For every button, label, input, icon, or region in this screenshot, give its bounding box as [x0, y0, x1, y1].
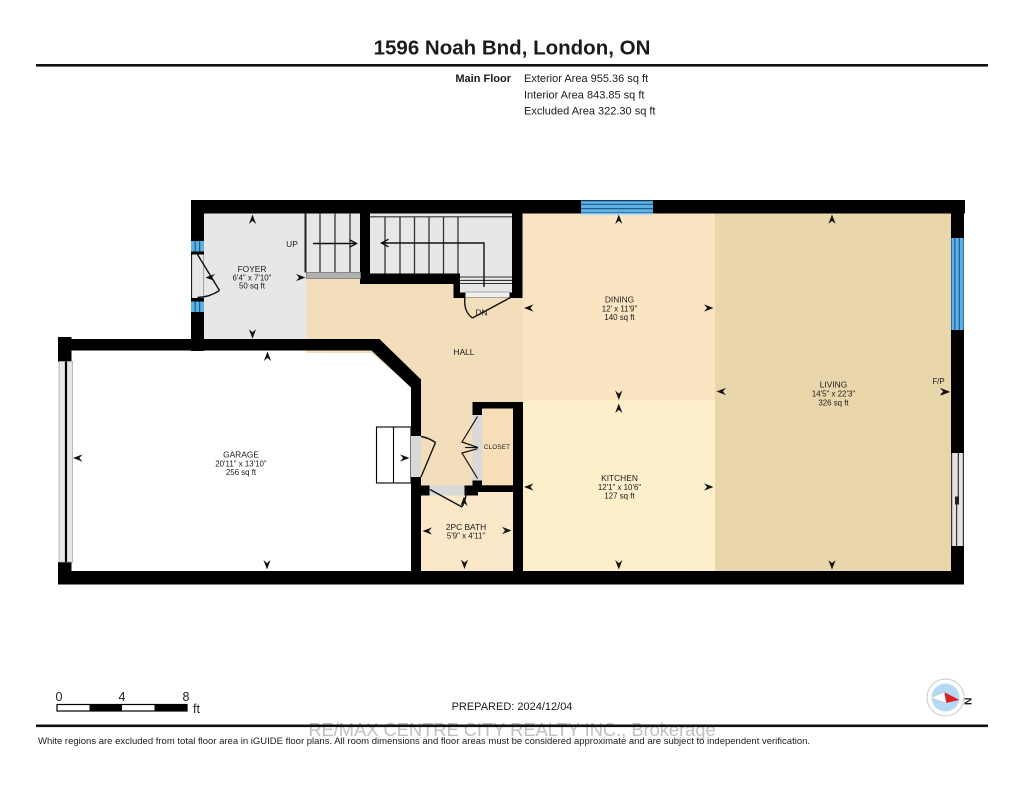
svg-text:326 sq ft: 326 sq ft — [818, 399, 849, 408]
svg-text:PREPARED: 2024/12/04: PREPARED: 2024/12/04 — [452, 701, 573, 713]
svg-text:0: 0 — [56, 690, 63, 704]
svg-text:F/P: F/P — [932, 377, 944, 386]
svg-text:140 sq ft: 140 sq ft — [604, 313, 635, 322]
svg-text:50 sq ft: 50 sq ft — [239, 282, 266, 291]
svg-text:FOYER: FOYER — [238, 264, 267, 274]
svg-text:UP: UP — [286, 239, 298, 249]
svg-text:Interior Area 843.85 sq ft: Interior Area 843.85 sq ft — [524, 90, 644, 102]
svg-text:LIVING: LIVING — [820, 380, 847, 390]
svg-text:Exterior Area 955.36 sq ft: Exterior Area 955.36 sq ft — [524, 73, 648, 85]
svg-text:HALL: HALL — [454, 347, 475, 357]
svg-text:8: 8 — [183, 690, 190, 704]
svg-text:5'9" x 4'11": 5'9" x 4'11" — [447, 532, 485, 541]
svg-text:127 sq ft: 127 sq ft — [604, 492, 635, 501]
svg-text:CLOSET: CLOSET — [484, 444, 510, 451]
svg-text:DINING: DINING — [605, 295, 634, 305]
svg-text:14'5" x 22'3": 14'5" x 22'3" — [812, 390, 855, 399]
svg-text:Excluded Area 322.30 sq ft: Excluded Area 322.30 sq ft — [524, 106, 655, 118]
svg-text:4: 4 — [119, 690, 126, 704]
svg-text:White regions are excluded fro: White regions are excluded from total fl… — [38, 736, 810, 747]
svg-text:DN: DN — [475, 308, 487, 318]
svg-text:N: N — [962, 698, 974, 706]
svg-text:256 sq ft: 256 sq ft — [226, 468, 257, 477]
svg-text:ft: ft — [193, 702, 200, 716]
svg-text:2PC BATH: 2PC BATH — [446, 522, 486, 532]
svg-text:Main Floor: Main Floor — [455, 73, 511, 85]
svg-text:GARAGE: GARAGE — [223, 450, 259, 460]
svg-text:1596 Noah Bnd, London, ON: 1596 Noah Bnd, London, ON — [374, 37, 651, 60]
svg-text:KITCHEN: KITCHEN — [601, 473, 638, 483]
